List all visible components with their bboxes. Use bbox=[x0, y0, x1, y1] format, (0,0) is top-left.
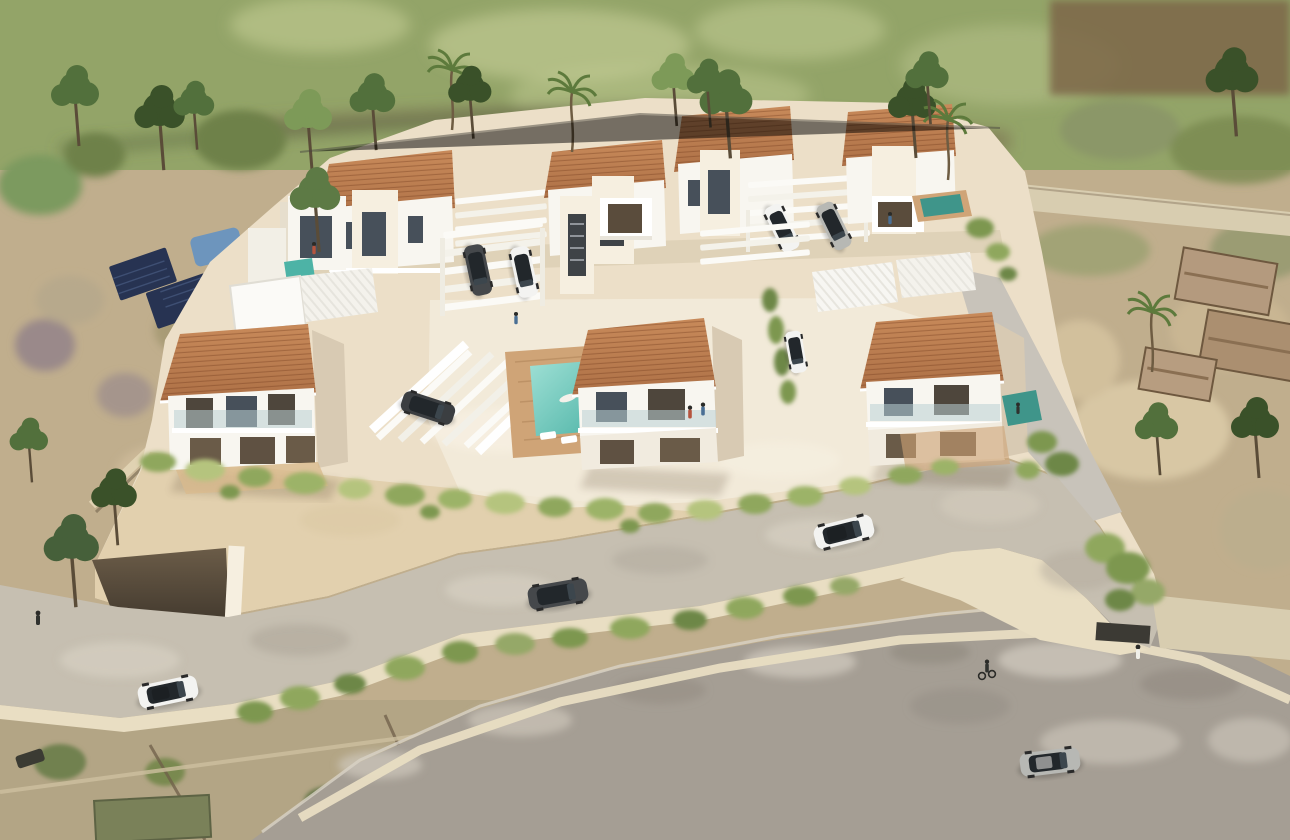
person-balcony-1 bbox=[688, 406, 692, 419]
person-terrace bbox=[1016, 402, 1020, 414]
balcony-slab bbox=[172, 428, 314, 433]
balcony-railing bbox=[582, 410, 716, 427]
side-face bbox=[312, 330, 348, 468]
person-balcony-back bbox=[888, 212, 892, 224]
walker-left-road bbox=[36, 611, 41, 625]
plunge-pool bbox=[1002, 390, 1042, 426]
exit-gate-grate bbox=[1095, 622, 1150, 644]
pedestrian-site-exit bbox=[1136, 645, 1141, 659]
balcony-box-interior bbox=[608, 204, 642, 233]
silver-roof-panel bbox=[1035, 756, 1052, 770]
person-courtyard bbox=[514, 312, 518, 324]
scene-svg bbox=[0, 0, 1290, 840]
person-balcony-2 bbox=[701, 403, 705, 416]
balcony-railing bbox=[870, 404, 1000, 421]
tower-window bbox=[362, 212, 386, 256]
tower-window bbox=[708, 170, 730, 214]
person-window bbox=[312, 242, 316, 254]
neighbor-pond bbox=[94, 795, 211, 840]
balcony-railing bbox=[174, 410, 312, 428]
balcony-box-interior bbox=[878, 202, 912, 227]
render-canvas bbox=[0, 0, 1290, 840]
